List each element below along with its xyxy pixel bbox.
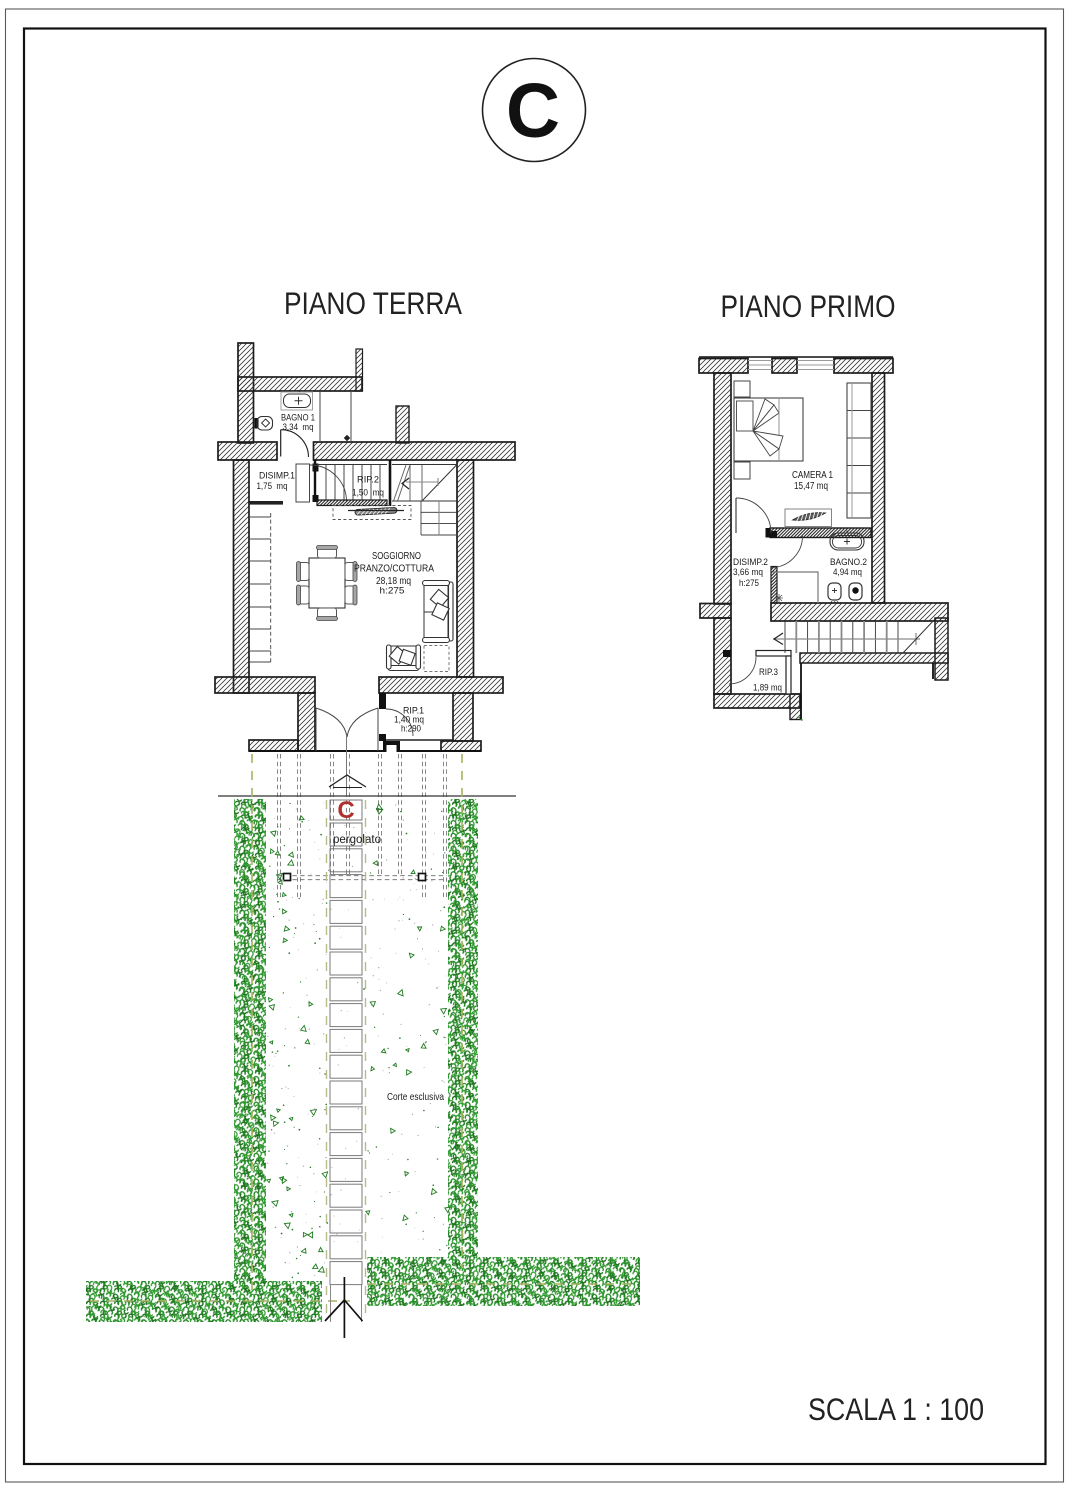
svg-text:RIP.3: RIP.3: [759, 667, 778, 678]
svg-text:PIANO PRIMO: PIANO PRIMO: [721, 288, 896, 324]
svg-text:1,89 mq: 1,89 mq: [753, 683, 782, 694]
svg-text:h:275: h:275: [380, 585, 405, 596]
svg-text:h:290: h:290: [401, 724, 421, 735]
svg-text:15,47 mq: 15,47 mq: [794, 481, 828, 492]
svg-text:h:275: h:275: [739, 578, 759, 589]
svg-text:Corte esclusiva: Corte esclusiva: [387, 1091, 444, 1103]
svg-text:4,94 mq: 4,94 mq: [833, 567, 862, 578]
svg-text:SCALA 1 : 100: SCALA 1 : 100: [808, 1391, 984, 1427]
svg-text:C: C: [506, 68, 560, 154]
svg-text:1,50 mq: 1,50 mq: [352, 488, 384, 499]
svg-text:CAMERA 1: CAMERA 1: [792, 470, 833, 481]
svg-text:PIANO TERRA: PIANO TERRA: [284, 285, 462, 321]
svg-text:3,66 mq: 3,66 mq: [733, 567, 763, 578]
svg-text:pergolato: pergolato: [333, 834, 381, 846]
svg-text:PRANZO/COTTURA: PRANZO/COTTURA: [354, 564, 434, 575]
svg-text:SOGGIORNO: SOGGIORNO: [372, 551, 421, 562]
svg-text:C: C: [337, 797, 354, 824]
svg-text:RIP.2: RIP.2: [357, 475, 379, 486]
svg-text:3,34 mq: 3,34 mq: [283, 422, 314, 433]
svg-text:1,75 mq: 1,75 mq: [257, 481, 288, 492]
svg-text:DISIMP.1: DISIMP.1: [259, 471, 295, 482]
